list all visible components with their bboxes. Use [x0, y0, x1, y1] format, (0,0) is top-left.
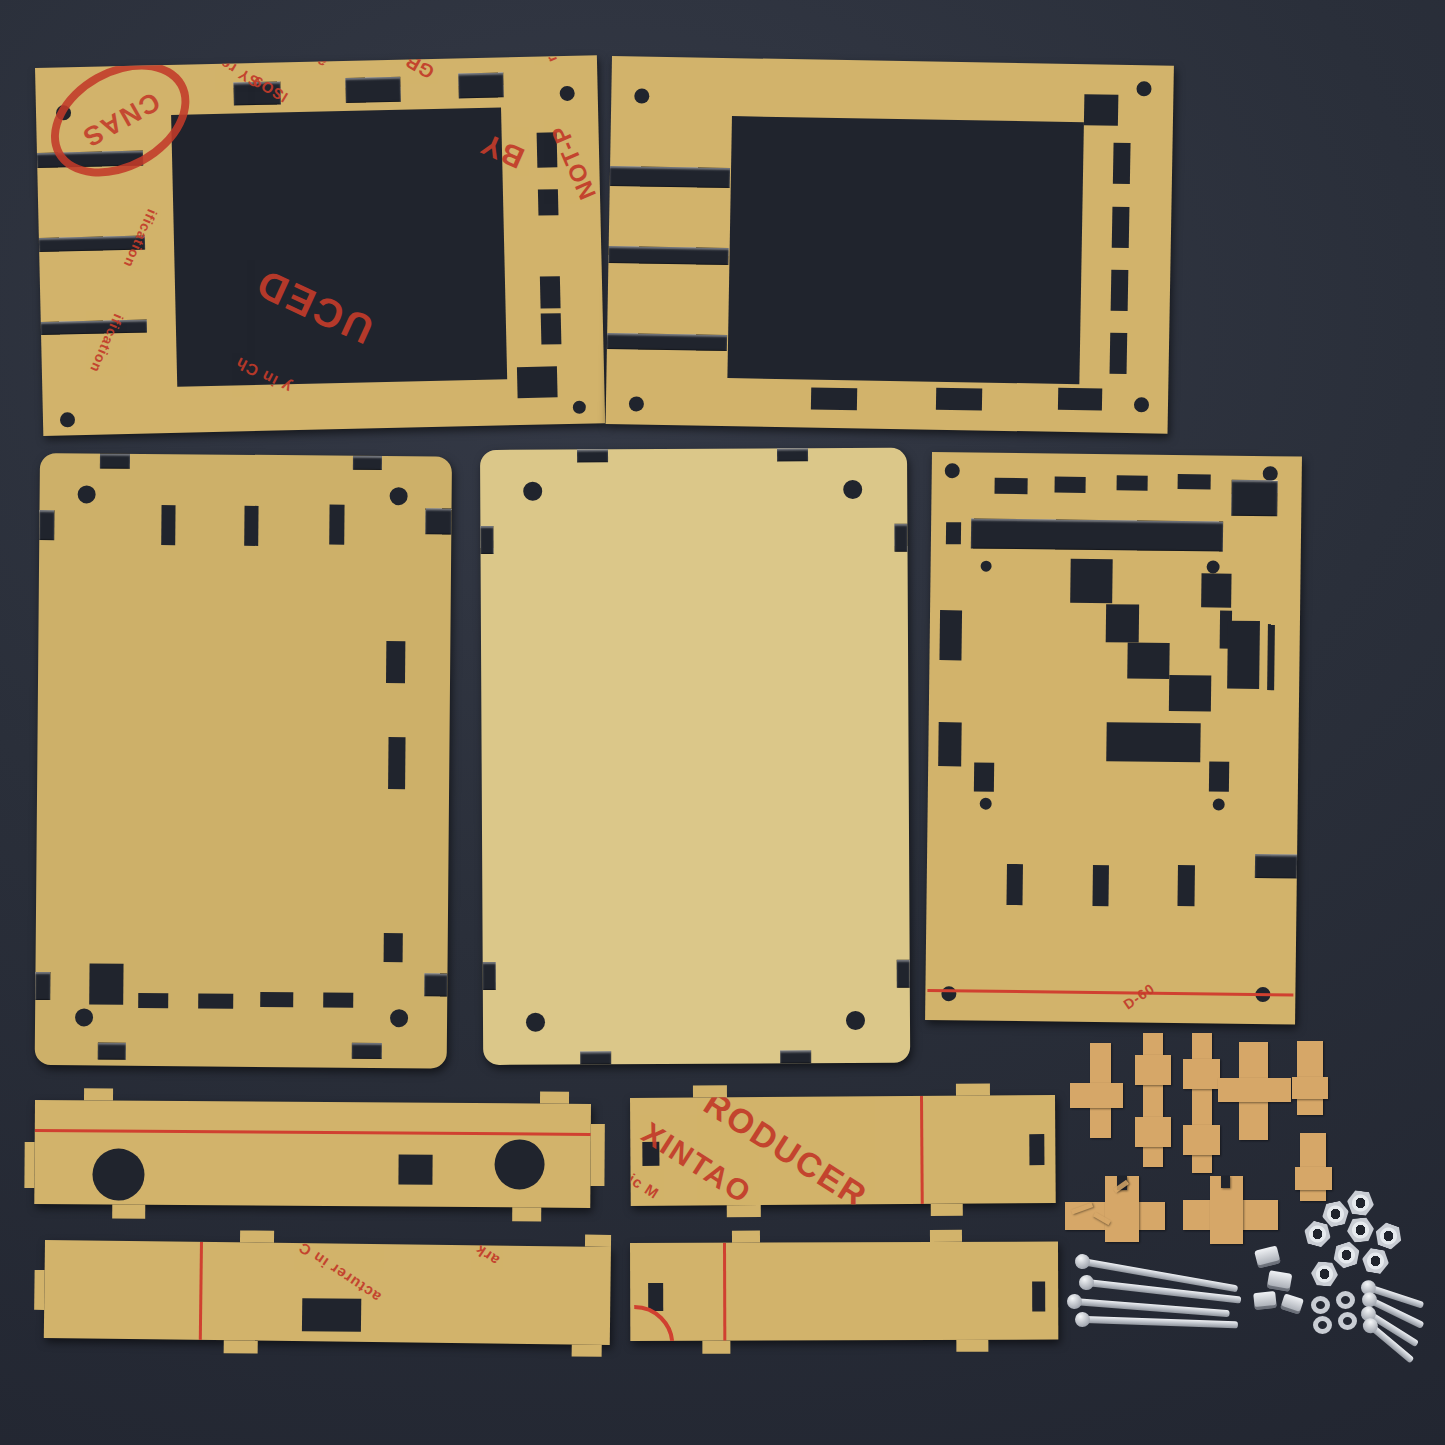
edge-notch [100, 454, 130, 469]
red-print-fragment: y in Ch [233, 353, 295, 396]
slot-cutout [323, 992, 353, 1007]
edge-notch [425, 508, 451, 534]
red-print-fragment: ark [471, 1241, 502, 1269]
slot-cutout [384, 933, 403, 962]
hex-nut-on-edge [1254, 1245, 1281, 1268]
clip-double [1135, 1033, 1171, 1167]
slot-cutout [1113, 143, 1131, 184]
printed-film-layer [34, 1100, 591, 1208]
finger-tab [930, 1230, 962, 1242]
red-print-fragment: ification [120, 207, 160, 271]
screw-hole [846, 1011, 865, 1030]
square-cutout [1084, 94, 1119, 126]
red-print-fragment: NOT-P [545, 121, 602, 204]
clip-bar [1295, 1167, 1332, 1190]
slot-cutout [260, 992, 293, 1007]
screw-head [1078, 1274, 1095, 1291]
red-print-fragment: GB [401, 55, 438, 83]
screw-hole [390, 487, 408, 505]
hex-nut [1360, 1247, 1391, 1275]
slot-cutout [386, 641, 405, 683]
slot-cutout [1112, 207, 1130, 248]
finger-tab [956, 1083, 990, 1095]
red-print-fragment: UCED [248, 259, 381, 352]
printed-film-layer: acturer in C ark [44, 1240, 611, 1345]
clip-double [1183, 1033, 1220, 1173]
screw-hole [629, 396, 644, 411]
finger-tab [732, 1231, 760, 1243]
slot-cutout [198, 993, 233, 1008]
finger-tab [240, 1230, 274, 1242]
red-print-fragment: acturer in C [295, 1240, 384, 1306]
slot-cutout [244, 506, 258, 546]
clip-cross [1218, 1042, 1291, 1140]
alignment-red-line [920, 1096, 924, 1204]
clip-cross [1183, 1176, 1278, 1244]
red-print-fragment: agem [282, 55, 331, 71]
finger-tab [224, 1340, 258, 1353]
hex-nut-on-edge [1280, 1293, 1304, 1314]
edge-notch [353, 456, 382, 470]
screw-hole [1136, 81, 1151, 96]
washer [1338, 1312, 1357, 1330]
printed-film-layer: RODUCER XINTAO ic M [630, 1095, 1056, 1206]
printed-film-layer: CNAS SY re ISO9 agem pag GB ne Bigge rov… [35, 55, 605, 436]
finger-tab [956, 1340, 988, 1352]
finger-tab [693, 1085, 727, 1097]
edge-notch [608, 246, 728, 265]
printed-film-layer: D-60 [925, 452, 1302, 1024]
screen-window-cutout [727, 116, 1084, 384]
screw-hole [78, 485, 96, 503]
screw-hole [523, 482, 542, 501]
red-print-fragment: ification [87, 312, 127, 376]
screw-head [1066, 1293, 1082, 1309]
edge-notch [607, 333, 727, 351]
edge-notch [483, 962, 496, 990]
screw-head [1075, 1312, 1091, 1328]
washer [1311, 1296, 1330, 1314]
screw-hole [390, 1009, 408, 1027]
clip-bar [1183, 1059, 1220, 1089]
finger-tab [727, 1205, 761, 1217]
screw-hole [1134, 397, 1149, 412]
clip-cross [1070, 1043, 1123, 1138]
screw-hole [75, 1008, 93, 1026]
clip-bar [1183, 1125, 1220, 1155]
clip-bar [1070, 1083, 1123, 1108]
alignment-red-line [927, 989, 1293, 996]
slot-cutout [811, 388, 857, 411]
red-print-fragment: rovi [534, 55, 560, 64]
alignment-red-line [35, 1129, 591, 1136]
edge-notch [39, 510, 54, 540]
red-print-fragment: BY [476, 126, 530, 175]
hex-nut [1372, 1220, 1406, 1252]
screw-head [1074, 1253, 1091, 1270]
finger-tab [590, 1124, 604, 1186]
edge-notch [577, 449, 608, 462]
hex-nut [1310, 1261, 1339, 1287]
screw-hole [634, 88, 649, 103]
edge-notch [424, 973, 447, 996]
strip-side-slot: acturer in C ark [44, 1240, 611, 1345]
strip-side-xintao: RODUCER XINTAO ic M [630, 1095, 1056, 1206]
panel-back-plate: D-60 [925, 452, 1302, 1024]
finger-tab [34, 1270, 44, 1310]
slot-cutout [329, 505, 344, 545]
slot-cutout [161, 505, 175, 545]
long-screw [1074, 1298, 1230, 1317]
finger-tab [702, 1341, 730, 1354]
edge-notch [480, 526, 493, 554]
finger-tab [112, 1205, 145, 1219]
alignment-red-line [723, 1243, 726, 1341]
clip-bar [1218, 1078, 1291, 1102]
hex-nut-on-edge [1253, 1291, 1277, 1310]
clip-bar [1135, 1055, 1171, 1085]
screw-hole [843, 480, 862, 499]
edge-notch [780, 1050, 811, 1063]
photo-scene: CNAS SY re ISO9 agem pag GB ne Bigge rov… [0, 0, 1445, 1445]
edge-notch [777, 448, 808, 461]
hex-nut [1330, 1239, 1363, 1270]
clip-cross-marked [1065, 1176, 1165, 1242]
red-print-fragment: ne Bigge [398, 55, 468, 58]
printed-film-layer [630, 1242, 1058, 1341]
red-print-fragment: ic M [630, 1170, 662, 1202]
finger-tab [572, 1344, 602, 1356]
slot-cutout [138, 993, 168, 1008]
edge-notch [897, 960, 910, 988]
screw-hole [526, 1013, 545, 1032]
clip-bar [1292, 1077, 1328, 1099]
finger-tab [512, 1207, 541, 1221]
hex-nut-on-edge [1267, 1270, 1293, 1292]
edge-notch [610, 166, 730, 188]
edge-notch [352, 1043, 382, 1059]
strip-side-bnc [34, 1100, 591, 1208]
clip-tee [1295, 1133, 1332, 1201]
panel-front-bezel-plain [606, 56, 1174, 434]
red-print-fragment: ISO9 [249, 72, 291, 106]
red-print-fragment: D-60 [1120, 980, 1157, 1013]
slot-cutout [388, 737, 405, 789]
slot-cutout [1058, 388, 1102, 411]
clip-tee [1292, 1041, 1328, 1115]
cnas-stamp-text: CNAS [76, 85, 165, 153]
edge-notch [35, 972, 50, 1000]
hex-nut [1345, 1189, 1375, 1217]
washer [1336, 1291, 1355, 1309]
alignment-red-line [199, 1242, 203, 1340]
finger-tab [24, 1142, 34, 1188]
square-cutout [89, 963, 123, 1004]
panel-cover-plate [480, 448, 910, 1065]
edge-notch [894, 524, 907, 552]
strip-side-plain [630, 1242, 1058, 1341]
edge-notch [98, 1043, 126, 1060]
slot-cutout [936, 388, 982, 411]
finger-tab [585, 1235, 611, 1247]
clip-bar [1135, 1117, 1171, 1147]
panel-base-plate [35, 453, 452, 1069]
cnas-stamp: CNAS [35, 55, 210, 200]
finger-tab [84, 1088, 113, 1100]
clip-notch [1221, 1176, 1230, 1188]
slot-cutout [1110, 333, 1128, 374]
slot-cutout [1111, 270, 1129, 311]
red-print-arc [630, 1305, 674, 1341]
edge-notch [580, 1051, 611, 1064]
washer [1313, 1316, 1332, 1334]
finger-tab [931, 1204, 963, 1216]
hex-nut [1346, 1217, 1375, 1243]
long-screw [1082, 1316, 1238, 1328]
finger-tab [540, 1092, 569, 1104]
panel-front-bezel-printed: CNAS SY re ISO9 agem pag GB ne Bigge rov… [35, 55, 605, 436]
